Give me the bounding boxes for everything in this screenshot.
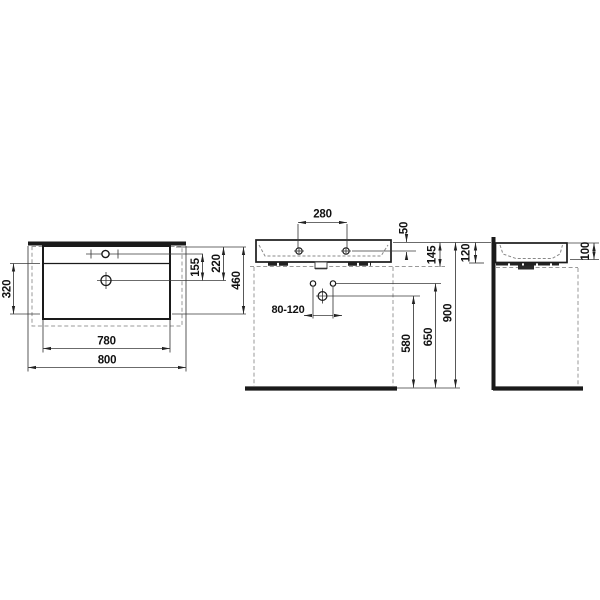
- side-basin-outline: [496, 243, 568, 263]
- plan-tap-hole-icon: [102, 250, 109, 257]
- front-supply-left-icon: [310, 281, 315, 286]
- technical-drawing: 320 155 220 460 780 800: [0, 0, 600, 600]
- dim-label-320: 320: [2, 280, 14, 299]
- dim-label-100: 100: [580, 242, 592, 261]
- dim-label-780: 780: [97, 336, 116, 348]
- plan-view: 320 155 220 460 780 800: [2, 244, 247, 372]
- dim-label-280: 280: [313, 209, 332, 221]
- side-view: 120 100: [461, 237, 600, 390]
- dim-label-460: 460: [231, 271, 243, 290]
- front-view: 80-120 280 50 145 580 650 900: [245, 209, 491, 389]
- dim-label-120: 120: [461, 244, 473, 263]
- dim-label-220: 220: [211, 254, 223, 273]
- dim-label-80-120: 80-120: [271, 304, 304, 316]
- dim-label-580: 580: [401, 334, 413, 353]
- washbasin-dimension-drawing: 320 155 220 460 780 800: [0, 0, 600, 600]
- dim-label-800: 800: [98, 355, 117, 367]
- dim-label-155: 155: [190, 257, 202, 276]
- dim-label-650: 650: [423, 328, 435, 347]
- front-trap: [315, 262, 327, 269]
- dim-label-50: 50: [399, 222, 411, 234]
- dim-label-145: 145: [427, 245, 439, 264]
- side-trap: [518, 266, 534, 270]
- dim-label-900: 900: [443, 304, 455, 323]
- front-supply-right-icon: [330, 281, 335, 286]
